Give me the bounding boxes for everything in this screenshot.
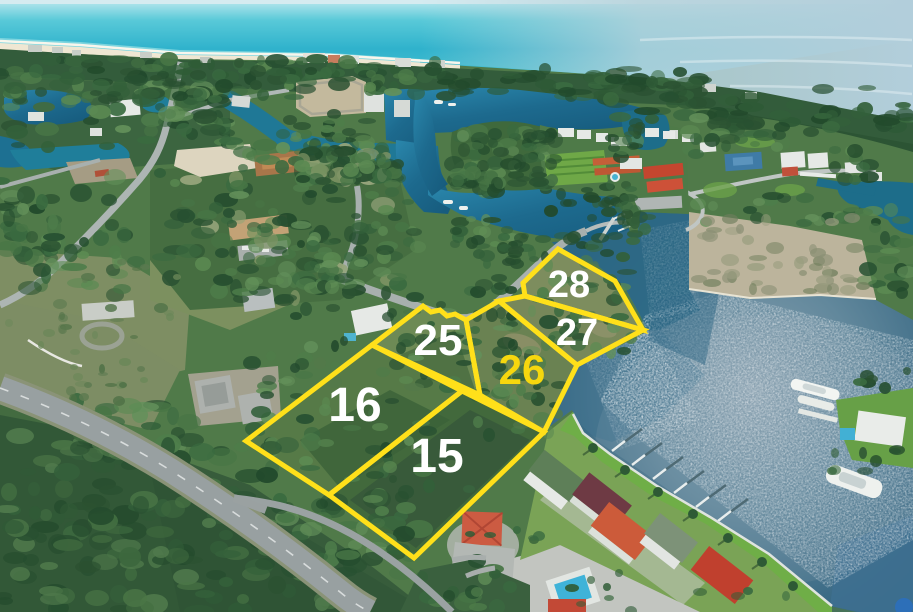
- svg-text:26: 26: [499, 346, 546, 393]
- svg-text:28: 28: [548, 264, 590, 306]
- svg-text:15: 15: [410, 430, 463, 483]
- svg-text:25: 25: [414, 316, 463, 365]
- svg-text:16: 16: [328, 379, 381, 432]
- svg-text:27: 27: [556, 312, 598, 354]
